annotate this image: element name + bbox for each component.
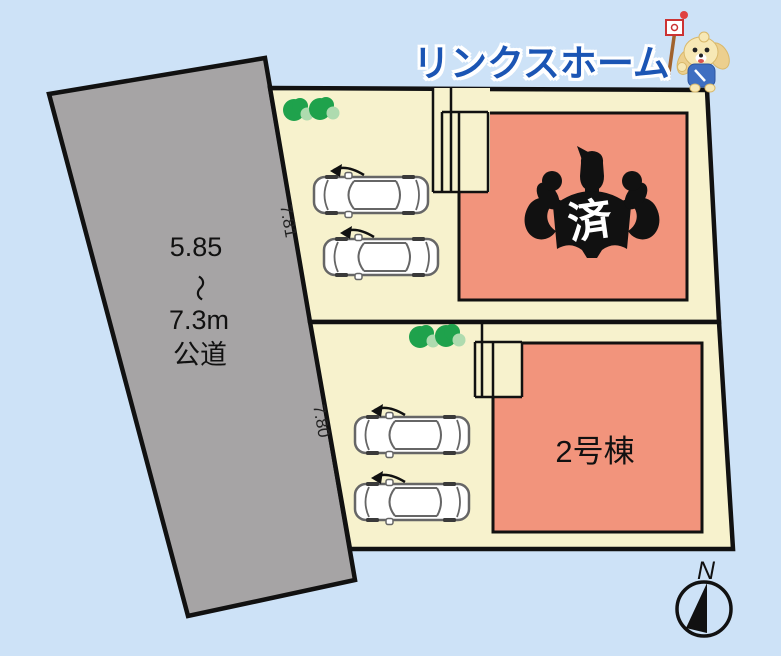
road-type: 公道 <box>173 340 227 370</box>
compass-north-icon: N <box>677 557 731 636</box>
dog-mascot-icon <box>666 11 734 92</box>
building-1-porch <box>433 88 490 192</box>
brand-logo: リンクスホーム <box>413 33 670 87</box>
building-2-label: 2号棟 <box>555 434 634 469</box>
sold-stamp-text: 済 <box>565 194 616 249</box>
site-plan-canvas: 済 2号棟 7.81 7.80 5.85 〜 7.3m 公道 N <box>0 0 781 656</box>
road-width-max: 7.3m <box>169 305 229 335</box>
road-width-min: 5.85 <box>170 232 223 262</box>
road-tilde: 〜 <box>184 275 214 302</box>
